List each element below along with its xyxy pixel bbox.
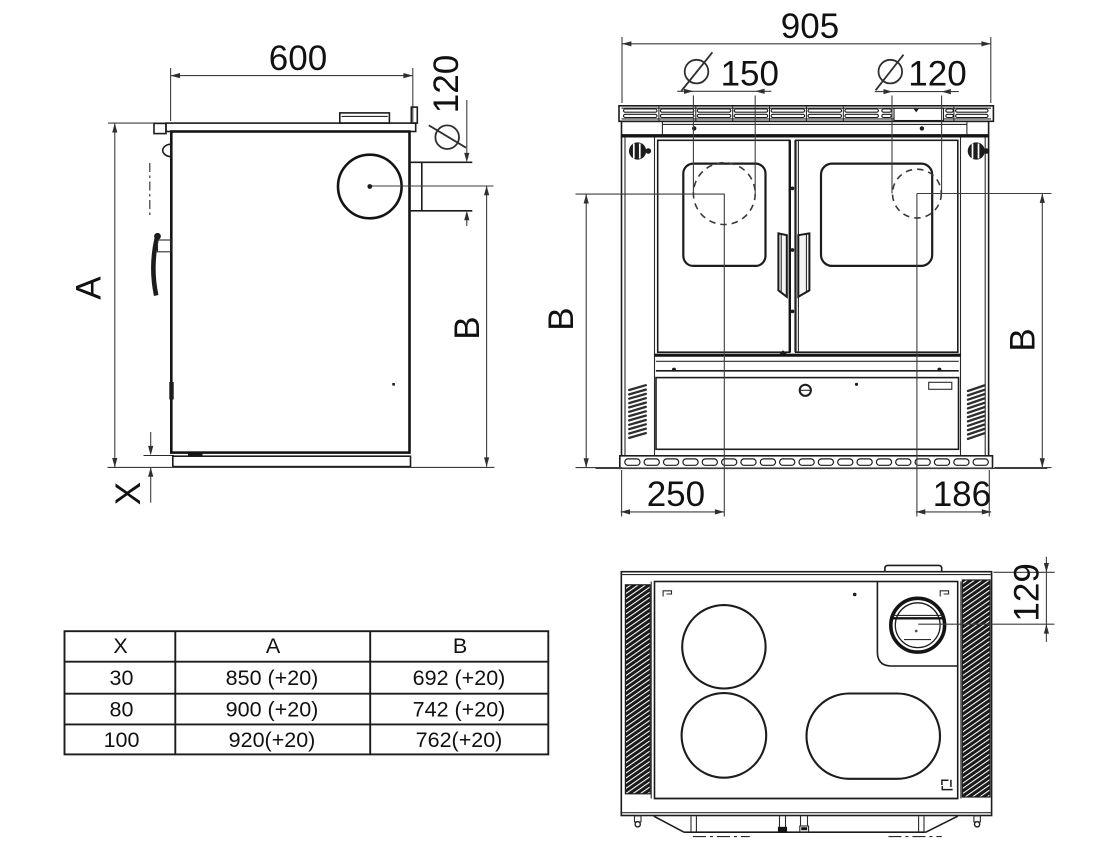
svg-text:A: A — [70, 276, 109, 300]
svg-text:742 (+20): 742 (+20) — [413, 698, 506, 722]
svg-text:920(+20): 920(+20) — [229, 728, 316, 752]
svg-text:250: 250 — [647, 475, 705, 514]
svg-text:150: 150 — [721, 55, 779, 94]
svg-text:900 (+20): 900 (+20) — [226, 698, 319, 722]
svg-text:850 (+20): 850 (+20) — [226, 666, 319, 690]
svg-text:30: 30 — [110, 666, 134, 690]
svg-text:B: B — [1003, 328, 1042, 351]
svg-text:X: X — [113, 634, 127, 658]
svg-text:186: 186 — [933, 475, 991, 514]
svg-text:600: 600 — [269, 39, 327, 78]
svg-text:B: B — [448, 316, 487, 339]
svg-text:X: X — [109, 482, 148, 505]
svg-text:905: 905 — [781, 7, 839, 46]
svg-text:B: B — [542, 307, 581, 330]
svg-text:692 (+20): 692 (+20) — [413, 666, 506, 690]
svg-text:A: A — [266, 634, 281, 658]
svg-text:120: 120 — [427, 55, 466, 113]
svg-text:120: 120 — [908, 55, 966, 94]
svg-text:762(+20): 762(+20) — [416, 728, 503, 752]
svg-text:B: B — [453, 634, 467, 658]
svg-text:80: 80 — [110, 698, 134, 722]
svg-text:129: 129 — [1008, 563, 1047, 621]
svg-text:100: 100 — [104, 728, 140, 752]
